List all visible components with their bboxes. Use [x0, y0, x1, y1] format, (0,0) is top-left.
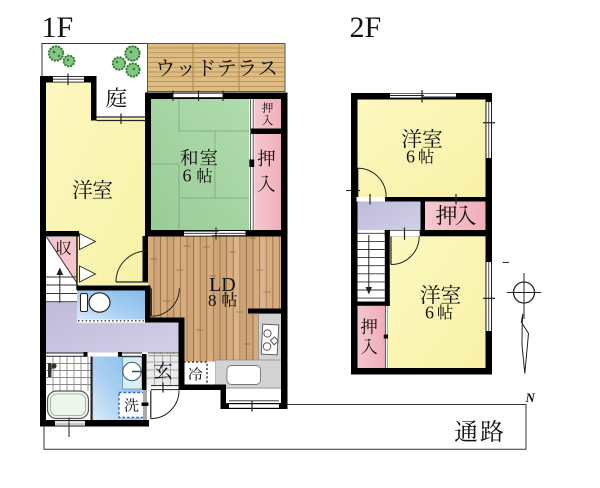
svg-text:6: 6 — [183, 166, 192, 186]
svg-text:N: N — [525, 390, 536, 405]
svg-text:8: 8 — [208, 291, 217, 310]
svg-text:6: 6 — [406, 147, 415, 167]
svg-text:1F: 1F — [42, 11, 74, 44]
svg-text:6: 6 — [425, 302, 434, 322]
svg-text:2F: 2F — [350, 11, 382, 44]
